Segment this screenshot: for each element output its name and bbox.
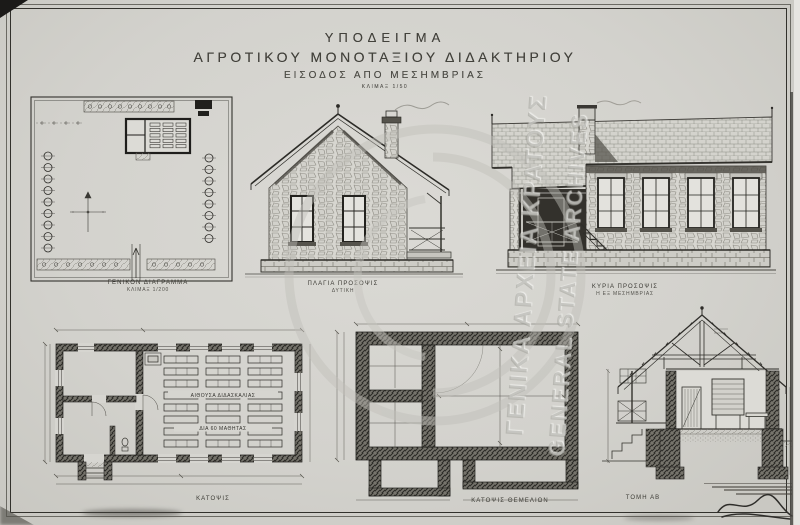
building-footprint bbox=[126, 119, 190, 160]
tree-row-left bbox=[41, 152, 55, 252]
title-line1: ΥΠΟΔΕΙΓΜΑ bbox=[150, 30, 620, 45]
paper-edge-right bbox=[794, 0, 800, 525]
scanned-architectural-sheet: ΥΠΟΔΕΙΓΜΑ ΑΓΡΟΤΙΚΟΥ ΜΟΝΟΤΑΞΙΟΥ ΔΙΔΑΚΤΗΡΙ… bbox=[0, 0, 800, 525]
porch-section bbox=[602, 369, 666, 467]
site-plan-caption: ΓΕΝΙΚΟΝ ΔΙΑΓΡΑΜΜΑ ΚΛΙΜΑΞ 1/200 bbox=[78, 280, 218, 293]
subtitle: ΕΙΣΟΔΟΣ ΑΠΟ ΜΕΣΗΜΒΡΙΑΣ bbox=[150, 70, 620, 81]
site-plan-drawing bbox=[28, 92, 238, 292]
planting-row bbox=[36, 121, 84, 125]
porch-foundation bbox=[369, 460, 450, 496]
scan-smudge-bottom-left bbox=[82, 509, 182, 517]
teacher-desk bbox=[145, 353, 161, 365]
scan-smudge-bottom-right bbox=[624, 515, 694, 521]
wc-partition bbox=[110, 426, 115, 455]
entrance-arrow bbox=[132, 244, 140, 281]
signature bbox=[712, 490, 796, 522]
toilet bbox=[122, 438, 128, 446]
smoke bbox=[597, 101, 641, 105]
classroom-desks bbox=[164, 356, 282, 447]
entry-porch bbox=[78, 462, 112, 480]
veranda-foundation bbox=[463, 460, 578, 489]
smoke bbox=[395, 102, 449, 110]
title-block: ΥΠΟΔΕΙΓΜΑ ΑΓΡΟΤΙΚΟΥ ΜΟΝΟΤΑΞΙΟΥ ΔΙΔΑΚΤΗΡΙ… bbox=[150, 30, 620, 90]
foundation-plan-caption: ΚΑΤΟΨΙΣ ΘΕΜΕΛΙΩΝ bbox=[430, 498, 590, 504]
tree-row-right bbox=[202, 154, 216, 243]
interior-door bbox=[682, 387, 701, 429]
cut-wall-right bbox=[766, 371, 779, 429]
section-caption: ΤΟΜΗ ΑΒ bbox=[608, 495, 678, 501]
title-line2: ΑΓΡΟΤΙΚΟΥ ΜΟΝΟΤΑΞΙΟΥ ΔΙΔΑΚΤΗΡΙΟΥ bbox=[150, 49, 620, 65]
latrine-block bbox=[195, 100, 212, 116]
garden-beds-bottom bbox=[37, 259, 215, 270]
cut-wall-left bbox=[666, 371, 676, 429]
scan-edge-right bbox=[790, 92, 793, 525]
classroom-label: ΑΙΘΟΥΣΑ ΔΙΔΑΣΚΑΛΙΑΣ bbox=[191, 393, 256, 399]
classroom-capacity-label: ΔΙΑ 60 ΜΑΘΗΤΑΣ bbox=[199, 426, 246, 432]
compass-cross bbox=[70, 192, 106, 232]
garden-bed-top bbox=[84, 101, 174, 112]
section-drawing bbox=[602, 303, 792, 498]
floor-plan-caption: ΚΑΤΟΨΙΣ bbox=[168, 496, 258, 502]
scale-note: ΚΛΙΜΑΞ 1/50 bbox=[150, 84, 620, 90]
